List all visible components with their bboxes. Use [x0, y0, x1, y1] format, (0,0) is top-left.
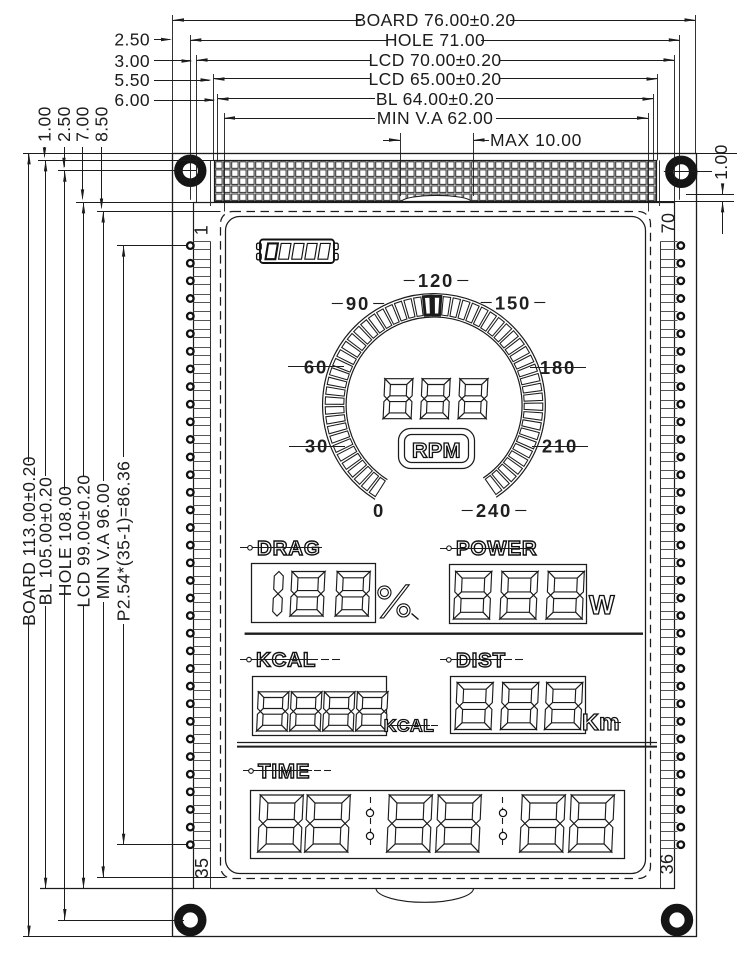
svg-text:MIN V.A 96.00: MIN V.A 96.00 — [93, 483, 113, 599]
svg-text:TIME: TIME — [258, 760, 310, 783]
svg-text:RPM: RPM — [412, 439, 461, 463]
svg-text:5.50: 5.50 — [114, 70, 150, 90]
svg-text:LCD 99.00±0.20: LCD 99.00±0.20 — [74, 475, 94, 608]
svg-text:KCAL: KCAL — [256, 649, 316, 672]
svg-text:HOLE 71.00: HOLE 71.00 — [385, 30, 485, 50]
svg-text:1: 1 — [192, 225, 212, 235]
svg-text:36: 36 — [657, 854, 677, 875]
svg-text:240: 240 — [476, 500, 512, 521]
svg-text:LCD 65.00±0.20: LCD 65.00±0.20 — [369, 69, 502, 89]
svg-text:BOARD 76.00±0.20: BOARD 76.00±0.20 — [355, 10, 516, 30]
svg-text:MIN V.A 62.00: MIN V.A 62.00 — [377, 108, 493, 128]
svg-text:6.00: 6.00 — [114, 90, 150, 110]
svg-text:BL 64.00±0.20: BL 64.00±0.20 — [376, 89, 494, 109]
svg-text:8.50: 8.50 — [92, 106, 112, 142]
svg-text:2.50: 2.50 — [114, 30, 150, 50]
svg-text:150: 150 — [495, 293, 531, 314]
svg-text:DIST: DIST — [456, 649, 506, 672]
svg-text:1.00: 1.00 — [35, 106, 55, 142]
svg-text:2.50: 2.50 — [54, 106, 74, 142]
svg-text:MAX 10.00: MAX 10.00 — [490, 130, 582, 150]
svg-text:DRAG: DRAG — [257, 537, 321, 560]
svg-text:HOLE 108.00: HOLE 108.00 — [55, 486, 75, 596]
svg-text:0: 0 — [373, 500, 385, 521]
svg-text:120: 120 — [418, 270, 454, 291]
svg-text:P2.54*(35-1)=86.36: P2.54*(35-1)=86.36 — [114, 461, 134, 621]
svg-text:35: 35 — [192, 858, 212, 879]
svg-text:1.00: 1.00 — [711, 144, 731, 180]
svg-text:3.00: 3.00 — [114, 51, 150, 71]
svg-text:BL 105.00±0.20: BL 105.00±0.20 — [36, 477, 56, 605]
svg-text:W: W — [589, 590, 615, 620]
svg-text:70: 70 — [659, 213, 679, 234]
svg-text:7.00: 7.00 — [73, 106, 93, 142]
svg-text:LCD 70.00±0.20: LCD 70.00±0.20 — [369, 50, 502, 70]
svg-text:90: 90 — [346, 293, 370, 314]
